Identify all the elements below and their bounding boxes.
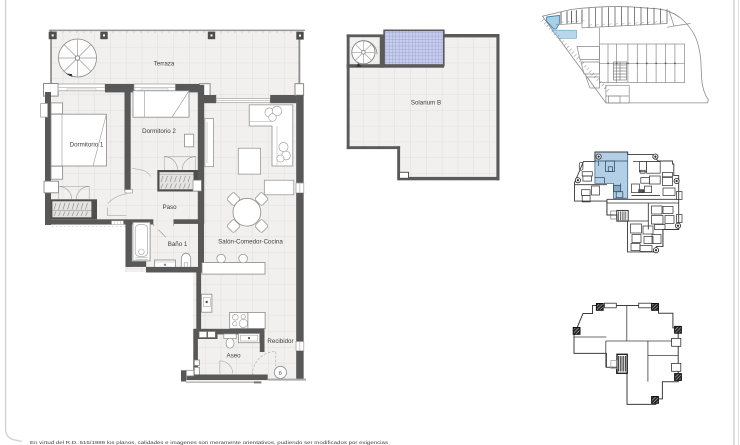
svg-text:B: B [279,370,282,376]
svg-text:En virtud del R.D. 515/1989 lo: En virtud del R.D. 515/1989 los planos, … [30,440,389,445]
svg-text:Dormitorio 1: Dormitorio 1 [70,142,104,149]
svg-text:Paso: Paso [162,204,177,211]
svg-text:Baño 1: Baño 1 [168,241,188,248]
svg-text:Dormitorio 2: Dormitorio 2 [142,128,176,135]
svg-text:Terraza: Terraza [154,61,175,68]
svg-text:Salón-Comedor-Cocina: Salón-Comedor-Cocina [218,238,283,245]
svg-text:Solarium B: Solarium B [411,99,441,106]
svg-text:Aseo: Aseo [226,352,241,359]
svg-text:Recibidor: Recibidor [267,338,293,345]
